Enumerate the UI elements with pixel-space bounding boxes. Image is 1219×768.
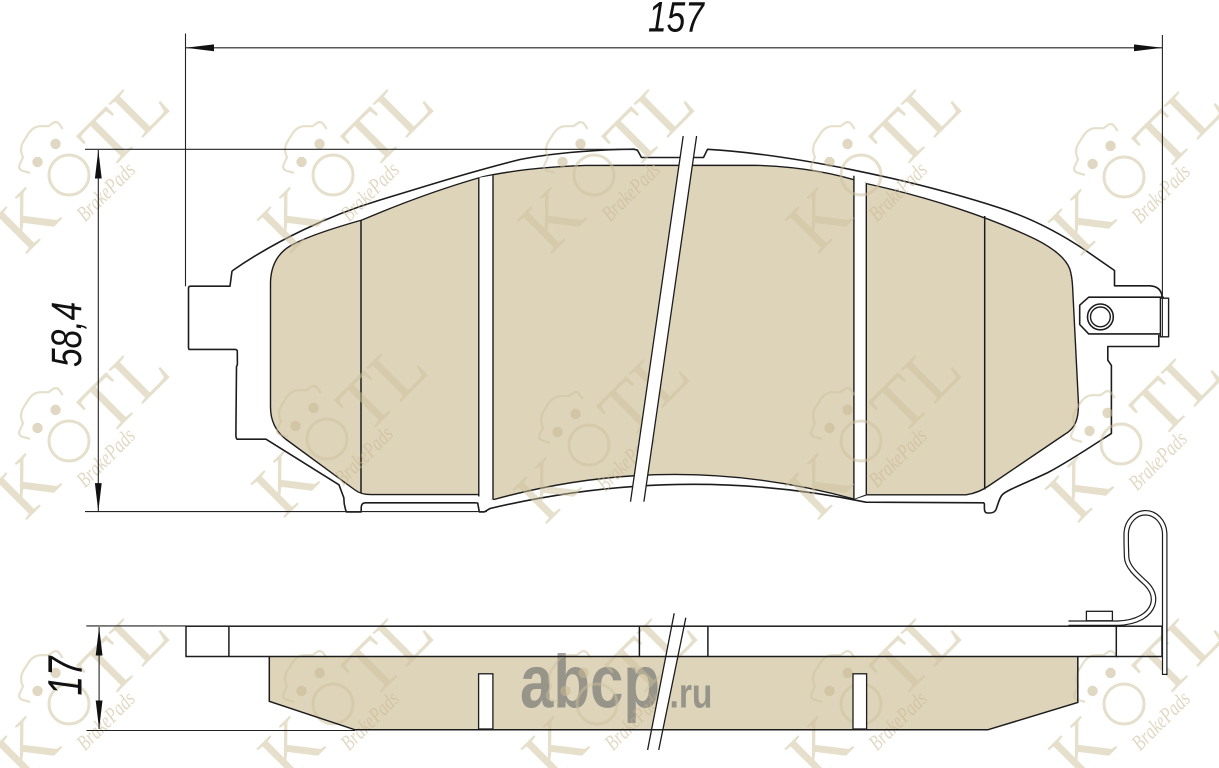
svg-text:157: 157 bbox=[648, 0, 705, 42]
svg-text:58,4: 58,4 bbox=[43, 302, 91, 367]
svg-text:17: 17 bbox=[38, 655, 92, 695]
